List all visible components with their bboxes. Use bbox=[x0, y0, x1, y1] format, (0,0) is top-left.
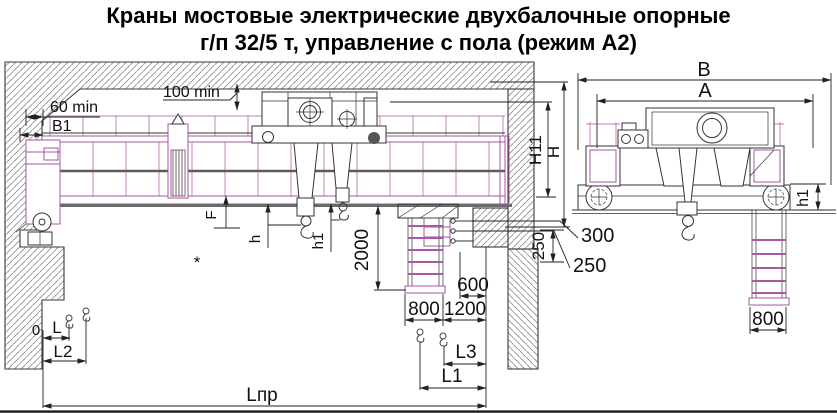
dim-100min-label: 100 min bbox=[163, 84, 220, 101]
dim-60min-label: 60 min bbox=[50, 99, 98, 116]
dim-hook-h1-label: h1 bbox=[310, 233, 327, 250]
dim-l1-label: L1 bbox=[441, 366, 462, 387]
aux-hook bbox=[332, 143, 352, 220]
central-cabinet bbox=[168, 114, 188, 198]
dim-2000-label: 2000 bbox=[352, 229, 373, 271]
dim-zero-label: 0 bbox=[32, 322, 40, 339]
dim-hook-h-label: h bbox=[247, 235, 264, 243]
dim-b-label: B bbox=[697, 59, 710, 81]
right-wall-hatch bbox=[508, 89, 534, 249]
drawing-canvas: 60 min B1 100 min H11 H F h bbox=[0, 0, 837, 413]
side-wheel-right bbox=[763, 184, 789, 210]
bridge-girder bbox=[36, 133, 512, 206]
dim-side-800-label: 800 bbox=[752, 309, 784, 330]
dim-side-h1-label: h1 bbox=[795, 189, 812, 207]
dim-800-label: 800 bbox=[408, 299, 440, 320]
rail-bracket-hatch bbox=[473, 208, 508, 247]
asterisk-note: * bbox=[194, 253, 201, 272]
dim-600-label: 600 bbox=[457, 275, 489, 296]
rope-guide-right bbox=[714, 148, 750, 186]
hook-position-marker bbox=[417, 329, 424, 342]
dim-300-label: 300 bbox=[581, 225, 614, 247]
dim-l2-label: L2 bbox=[54, 342, 73, 361]
dim-b1-label: B1 bbox=[52, 118, 72, 135]
main-view bbox=[16, 92, 512, 293]
trolley bbox=[252, 92, 386, 144]
crane-wheel bbox=[33, 213, 51, 231]
dim-a-label: A bbox=[698, 80, 712, 102]
dim-h11-label: H11 bbox=[526, 135, 545, 165]
current-collector bbox=[424, 218, 450, 246]
dim-l3-label: L3 bbox=[455, 342, 476, 363]
crane-drawing-page: Краны мостовые электрические двухбалочны… bbox=[0, 0, 837, 413]
dim-l-label: L bbox=[52, 318, 61, 337]
dim-250-leader-label: 250 bbox=[573, 255, 606, 277]
dim-h-label: H bbox=[544, 146, 563, 158]
main-hook bbox=[294, 143, 318, 238]
girder-stiffeners bbox=[60, 142, 489, 196]
dim-1200-label: 1200 bbox=[444, 299, 486, 320]
dim-250-vert-label: 250 bbox=[529, 232, 548, 260]
conductor-lines bbox=[451, 219, 473, 243]
side-ladder bbox=[749, 210, 789, 305]
hook-position-marker bbox=[440, 333, 447, 346]
dim-lpr-label: Lпр bbox=[246, 385, 277, 406]
trolley-bracket bbox=[368, 132, 380, 144]
dim-f-label: F bbox=[203, 210, 220, 219]
right-column-hatch bbox=[508, 249, 538, 369]
side-wheel-left bbox=[586, 184, 612, 210]
